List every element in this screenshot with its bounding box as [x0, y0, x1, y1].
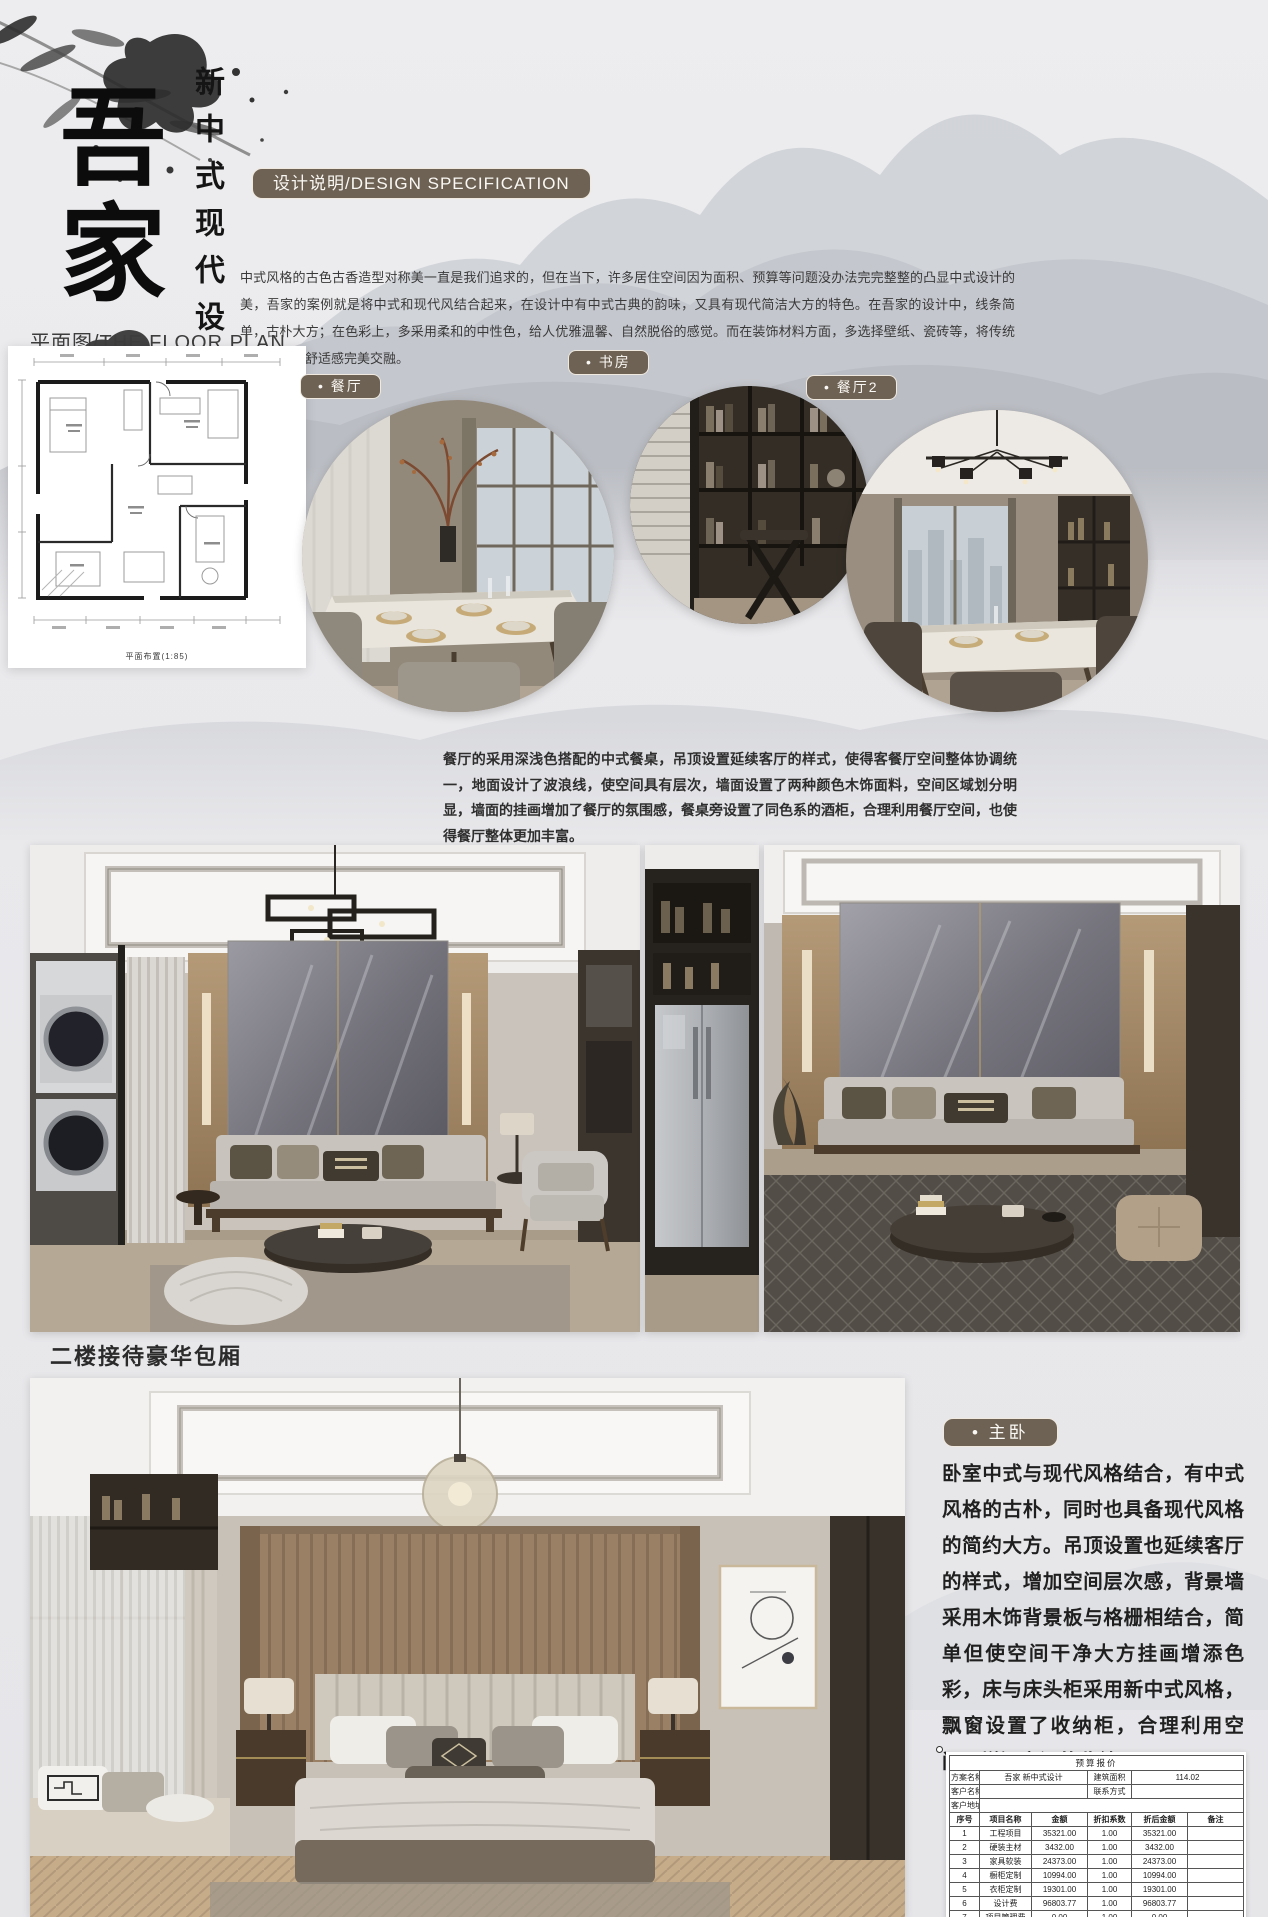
- study-photo-circle: [630, 386, 868, 624]
- design-spec-badge: 设计说明/DESIGN SPECIFICATION: [252, 168, 591, 199]
- budget-cell: 6: [950, 1897, 980, 1911]
- meta-label: 建筑面积: [1088, 1771, 1132, 1785]
- budget-cell: 10994.00: [1132, 1869, 1188, 1883]
- budget-cell: [1188, 1855, 1244, 1869]
- meta-value: [980, 1785, 1088, 1799]
- living-room-right-art: [764, 845, 1240, 1332]
- budget-col-note: 备注: [1188, 1813, 1244, 1827]
- budget-table-card: 预算报价 方案名称 吾家 新中式设计 建筑面积 114.02 客户名称 联系方式…: [946, 1752, 1246, 1917]
- poster-canvas: 吾家 新中式现代设计 设计说明/DESIGN SPECIFICATION 中式风…: [0, 0, 1268, 1917]
- budget-cell: 4: [950, 1869, 980, 1883]
- budget-cell: 1.00: [1088, 1911, 1132, 1917]
- budget-cell: 24373.00: [1032, 1855, 1088, 1869]
- master-bedroom-text: 卧室中式与现代风格结合，有中式风格的古朴，同时也具备现代风格的简约大方。吊顶设置…: [942, 1456, 1244, 1780]
- budget-cell: 衣柜定制: [980, 1883, 1032, 1897]
- budget-cell: 7: [950, 1911, 980, 1917]
- budget-meta-row: 客户名称 联系方式: [950, 1785, 1244, 1799]
- dining-description: 餐厅的采用深浅色搭配的中式餐桌，吊顶设置延续客厅的样式，使得客餐厅空间整体协调统…: [443, 747, 1017, 849]
- meta-value: [980, 1799, 1244, 1813]
- budget-cell: 1.00: [1088, 1827, 1132, 1841]
- budget-cell: [1188, 1827, 1244, 1841]
- budget-cell: 硬装主材: [980, 1841, 1032, 1855]
- budget-title: 预算报价: [950, 1756, 1244, 1771]
- master-bedroom-badge: • 主卧: [943, 1418, 1058, 1447]
- budget-title-row: 预算报价: [950, 1756, 1244, 1771]
- budget-col-discount: 折扣系数: [1088, 1813, 1132, 1827]
- living-room-photo-right: [764, 845, 1240, 1332]
- budget-cell: 24373.00: [1132, 1855, 1188, 1869]
- budget-cell: 1: [950, 1827, 980, 1841]
- budget-cell: 设计费: [980, 1897, 1032, 1911]
- budget-cell: 35321.00: [1032, 1827, 1088, 1841]
- budget-cell: [1188, 1841, 1244, 1855]
- study-badge: • 书房: [568, 350, 649, 375]
- budget-header-row: 序号 项目名称 金额 折扣系数 折后金额 备注: [950, 1813, 1244, 1827]
- budget-col-index: 序号: [950, 1813, 980, 1827]
- bedroom-photo: [30, 1378, 905, 1917]
- dining-badge: • 餐厅: [300, 374, 381, 399]
- budget-cell: 家具软装: [980, 1855, 1032, 1869]
- meta-label: 客户名称: [950, 1785, 980, 1799]
- budget-cell: 19301.00: [1132, 1883, 1188, 1897]
- kitchen-middle-art: [645, 845, 759, 1332]
- budget-row: 5衣柜定制19301.001.0019301.00: [950, 1883, 1244, 1897]
- budget-col-final: 折后金额: [1132, 1813, 1188, 1827]
- budget-row: 3家具软装24373.001.0024373.00: [950, 1855, 1244, 1869]
- budget-cell: 35321.00: [1132, 1827, 1188, 1841]
- budget-cell: [1188, 1911, 1244, 1917]
- meta-label: 方案名称: [950, 1771, 980, 1785]
- budget-cell: 96803.77: [1032, 1897, 1088, 1911]
- budget-cell: [1188, 1883, 1244, 1897]
- living-room-left-art: [30, 845, 640, 1332]
- dining-photo-circle: [302, 400, 614, 712]
- study-photo-art: [630, 386, 868, 624]
- dining2-photo-art: [846, 410, 1148, 712]
- budget-cell: 19301.00: [1032, 1883, 1088, 1897]
- budget-cell: 10994.00: [1032, 1869, 1088, 1883]
- budget-cell: 橱柜定制: [980, 1869, 1032, 1883]
- budget-cell: [1188, 1869, 1244, 1883]
- budget-meta-row: 方案名称 吾家 新中式设计 建筑面积 114.02: [950, 1771, 1244, 1785]
- budget-cell: 1.00: [1088, 1897, 1132, 1911]
- budget-row: 7项目管理费0.001.000.00: [950, 1911, 1244, 1917]
- budget-cell: 3: [950, 1855, 980, 1869]
- second-floor-label: 二楼接待豪华包厢: [50, 1339, 242, 1371]
- floor-plan-drawing: [8, 346, 306, 646]
- living-room-photo-left: [30, 845, 640, 1332]
- kitchen-photo-middle: [645, 845, 759, 1332]
- floor-plan-panel: 平面布置(1:85): [8, 346, 306, 668]
- budget-cell: 1.00: [1088, 1869, 1132, 1883]
- budget-cell: 1.00: [1088, 1855, 1132, 1869]
- dining2-badge: • 餐厅2: [806, 375, 897, 400]
- budget-row: 6设计费96803.771.0096803.77: [950, 1897, 1244, 1911]
- floor-plan-caption: 平面布置(1:85): [8, 651, 306, 662]
- budget-cell: 2: [950, 1841, 980, 1855]
- budget-table: 预算报价 方案名称 吾家 新中式设计 建筑面积 114.02 客户名称 联系方式…: [949, 1755, 1244, 1917]
- meta-value: 114.02: [1132, 1771, 1244, 1785]
- meta-label: 联系方式: [1088, 1785, 1132, 1799]
- budget-meta-row: 客户地址: [950, 1799, 1244, 1813]
- table-handle-marker: [936, 1746, 943, 1753]
- budget-cell: 1.00: [1088, 1883, 1132, 1897]
- bedroom-art: [30, 1378, 905, 1917]
- budget-cell: 96803.77: [1132, 1897, 1188, 1911]
- main-title-vertical: 吾家: [50, 82, 156, 314]
- budget-cell: 项目管理费: [980, 1911, 1032, 1917]
- budget-cell: 3432.00: [1132, 1841, 1188, 1855]
- meta-value: 吾家 新中式设计: [980, 1771, 1088, 1785]
- budget-cell: 0.00: [1032, 1911, 1088, 1917]
- budget-col-amount: 金额: [1032, 1813, 1088, 1827]
- budget-row: 4橱柜定制10994.001.0010994.00: [950, 1869, 1244, 1883]
- budget-cell: 0.00: [1132, 1911, 1188, 1917]
- dining2-photo-circle: [846, 410, 1148, 712]
- budget-cell: 5: [950, 1883, 980, 1897]
- budget-cell: [1188, 1897, 1244, 1911]
- budget-col-item: 项目名称: [980, 1813, 1032, 1827]
- budget-row: 1工程项目35321.001.0035321.00: [950, 1827, 1244, 1841]
- meta-value: [1132, 1785, 1244, 1799]
- budget-cell: 工程项目: [980, 1827, 1032, 1841]
- budget-cell: 1.00: [1088, 1841, 1132, 1855]
- budget-cell: 3432.00: [1032, 1841, 1088, 1855]
- budget-row: 2硬装主材3432.001.003432.00: [950, 1841, 1244, 1855]
- meta-label: 客户地址: [950, 1799, 980, 1813]
- dining-photo-art: [302, 400, 614, 712]
